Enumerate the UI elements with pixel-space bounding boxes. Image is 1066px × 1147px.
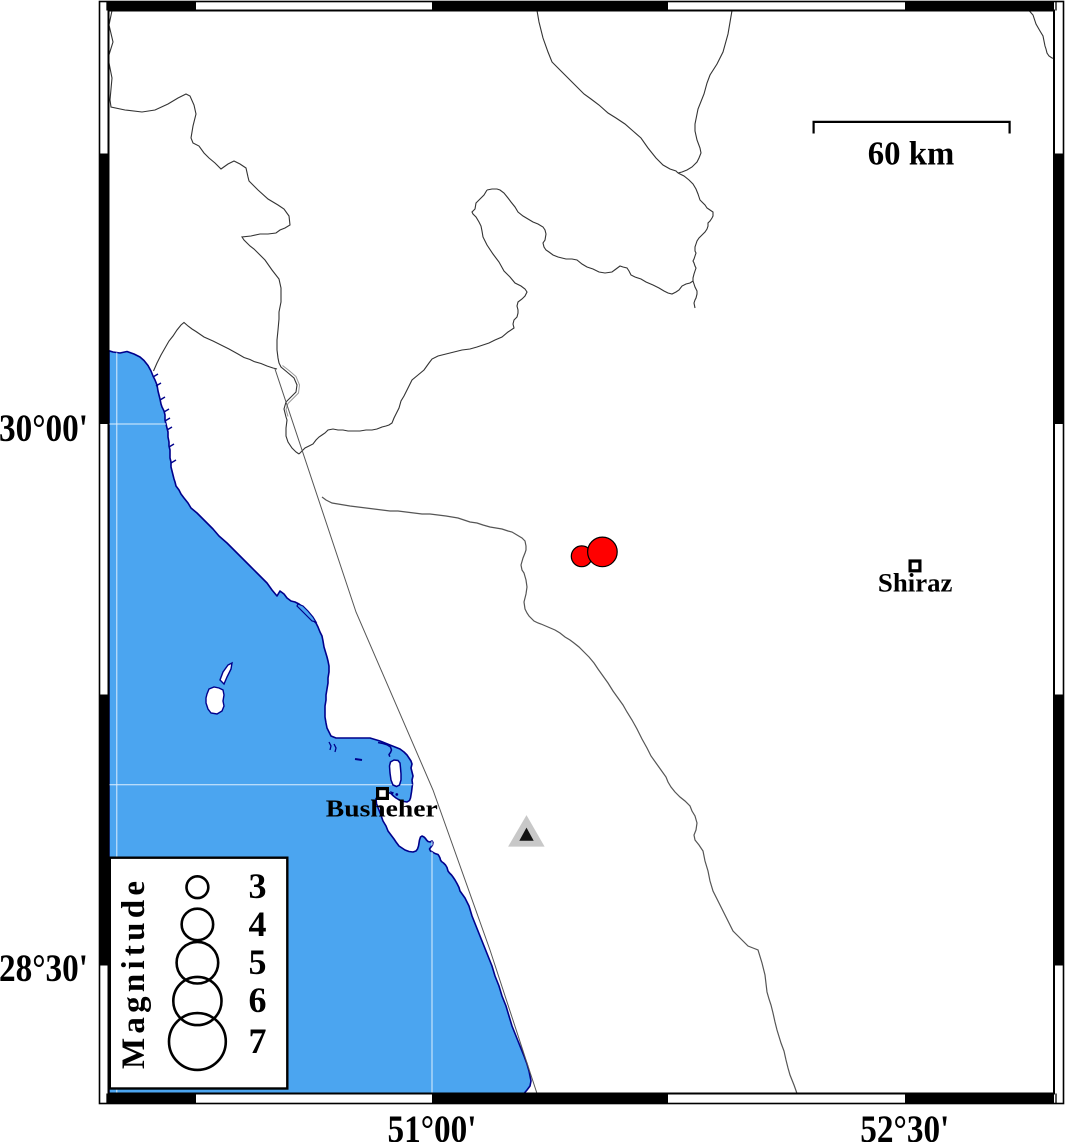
svg-text:5: 5	[249, 942, 267, 982]
svg-text:28°30': 28°30'	[0, 947, 88, 990]
svg-text:Magnitude: Magnitude	[116, 881, 152, 1069]
svg-text:30°00': 30°00'	[0, 407, 88, 450]
svg-text:7: 7	[249, 1021, 267, 1061]
svg-text:3: 3	[249, 866, 267, 906]
svg-text:51°00': 51°00'	[388, 1108, 477, 1142]
svg-text:4: 4	[249, 904, 267, 944]
svg-text:Shiraz: Shiraz	[878, 569, 953, 598]
svg-text:52°30': 52°30'	[860, 1108, 949, 1142]
svg-text:6: 6	[249, 980, 267, 1020]
svg-text:Busheher: Busheher	[326, 797, 438, 823]
svg-text:60 km: 60 km	[868, 136, 955, 173]
